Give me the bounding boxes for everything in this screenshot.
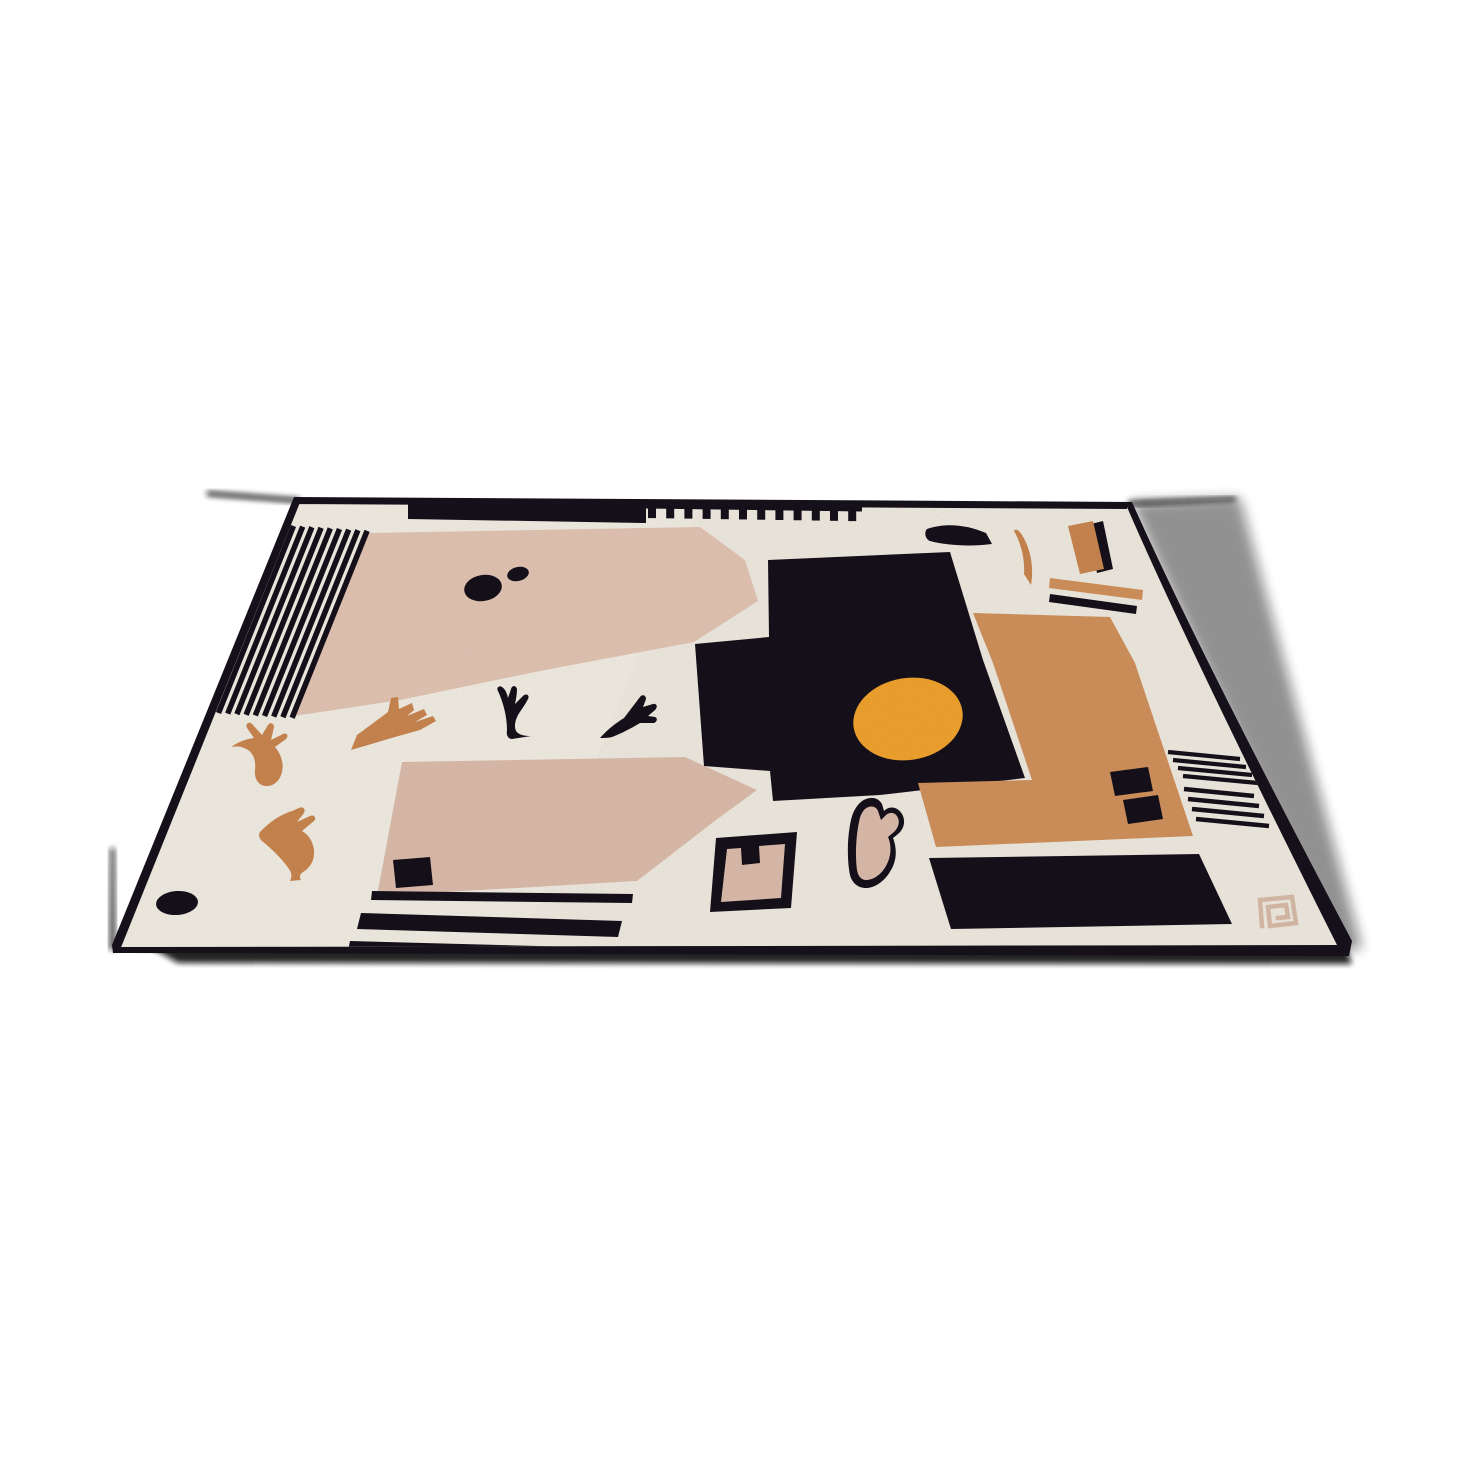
wool-texture [119, 502, 1337, 947]
shadow-top-left-whisker [207, 491, 300, 503]
shadow-left-whisker [109, 848, 116, 950]
product-photo [0, 0, 1457, 1457]
rug-illustration [0, 0, 1457, 1457]
